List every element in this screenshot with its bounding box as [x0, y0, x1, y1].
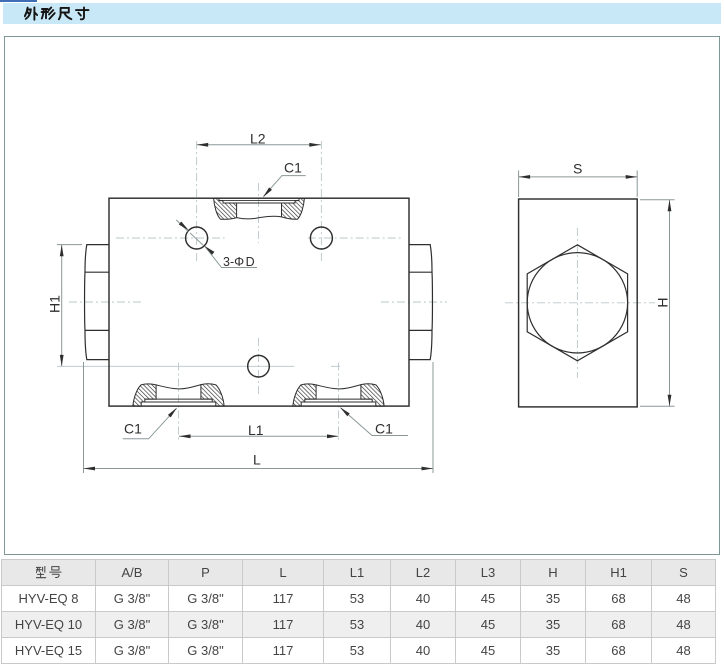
svg-text:H1: H1	[47, 295, 63, 313]
svg-text:C1: C1	[375, 421, 393, 437]
svg-text:C1: C1	[284, 160, 302, 176]
svg-text:L1: L1	[248, 422, 264, 438]
svg-text:L: L	[253, 452, 261, 468]
svg-text:3-ΦD: 3-ΦD	[223, 255, 255, 269]
svg-text:S: S	[573, 161, 582, 177]
svg-text:L2: L2	[250, 130, 266, 146]
svg-text:C1: C1	[124, 421, 142, 437]
svg-text:H: H	[655, 297, 671, 307]
